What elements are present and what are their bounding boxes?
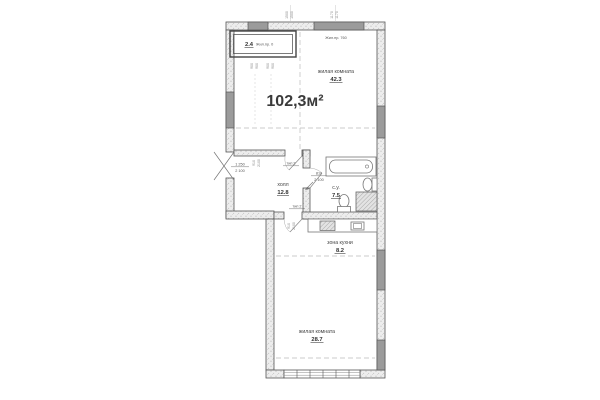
kitchen-counter (308, 219, 377, 232)
dim-mid-a1: 910 (252, 160, 256, 166)
window-bottom (284, 370, 360, 378)
dim-balcony-b2: 900 (271, 63, 275, 69)
room-label-living-bottom: жилая комната (299, 329, 335, 335)
dim-mid-b2: 2100 (292, 222, 296, 230)
entry-dim-height: 2 100 (235, 169, 245, 173)
entry-dim-width: 1 250 (235, 163, 245, 167)
top-right-note: Жил.пр. 760 (325, 36, 347, 40)
wall-hall-top-a (234, 150, 285, 156)
bath-dim-height: 2 100 (314, 178, 324, 182)
dim-top-a1: 1500 (285, 11, 289, 19)
bath-sink-icon (363, 178, 377, 191)
stove-icon (320, 221, 335, 231)
shaft-icon (356, 192, 377, 211)
kitchen-sink-icon (351, 222, 364, 230)
room-label-kitchen: зона кухни (327, 240, 353, 246)
wall-bottom-pier-right (360, 370, 385, 378)
total-area-label: 102,3м² (266, 93, 323, 110)
door-type-label-b: тип 2 (292, 205, 301, 209)
dim-balcony-b1: 900 (266, 63, 270, 69)
dim-mid-a2: 2100 (257, 159, 261, 167)
wall-right (377, 30, 385, 370)
dim-balcony-a1: 900 (250, 63, 254, 69)
wall-left-lower (266, 219, 274, 370)
bath-dim-width: 810 (316, 172, 322, 176)
floor-plan-canvas: 102,3м² жилая комната 42.3 2.4 Жил.пр. 0… (0, 0, 600, 400)
window-right-2 (377, 250, 385, 290)
floor-plan: 102,3м² жилая комната 42.3 2.4 Жил.пр. 0… (0, 0, 600, 400)
entry-opening-cross (214, 152, 234, 180)
wall-bath-bottom (302, 212, 377, 219)
dim-mid-b1: 910 (287, 223, 291, 229)
dim-top-a2: 1500 (290, 11, 294, 19)
window-left (226, 92, 234, 128)
wall-hall-bottom-a (274, 212, 284, 219)
room-label-bathroom: с.у. (332, 185, 340, 191)
window-right-1 (377, 106, 385, 138)
window-top-2 (314, 22, 364, 30)
room-label-hall: холл (277, 182, 288, 188)
dim-top-b1: 1170 (330, 11, 334, 19)
wall-bottom-pier-left (266, 370, 284, 378)
wall-bath-left-a (303, 150, 310, 168)
dim-top-b2: 1170 (335, 11, 339, 19)
bathtub-icon (326, 157, 376, 176)
dim-balcony-a2: 900 (255, 63, 259, 69)
window-top-1 (248, 22, 268, 30)
balcony-note: Жил.пр. 0 (256, 43, 273, 47)
window-right-3 (377, 340, 385, 370)
room-label-living-top: жилая комната (318, 69, 354, 75)
wall-step (226, 211, 274, 219)
door-type-label-a: тип 2 (286, 162, 295, 166)
kitchen-fixtures (308, 219, 377, 232)
